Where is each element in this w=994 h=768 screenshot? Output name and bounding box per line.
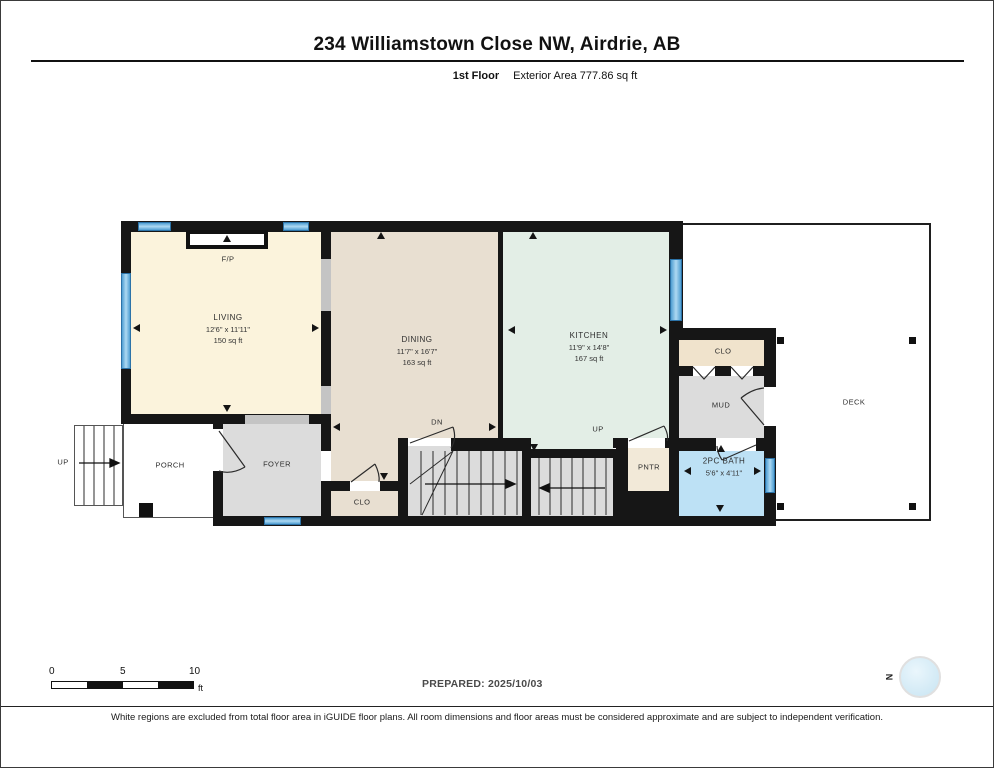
kitchen-floor-strip: [531, 438, 613, 449]
room-label-porch: PORCH: [155, 461, 184, 470]
hall-floor: [331, 424, 398, 481]
window: [264, 517, 301, 525]
scale-unit-label: ft: [198, 683, 203, 693]
wall: [616, 491, 679, 501]
exterior-area-label: Exterior Area 777.86 sq ft: [513, 70, 637, 82]
fireplace: [186, 230, 268, 249]
room-label-dining: DINING 11'7" x 16'7" 163 sq ft: [397, 334, 438, 369]
porch-post: [139, 503, 153, 517]
exterior-stairs-up-label: UP: [57, 458, 68, 467]
scale-tick-0: 0: [49, 666, 55, 677]
deck-post: [777, 503, 784, 510]
scale-bar: [51, 681, 194, 689]
exterior-stairs: [74, 425, 123, 506]
wall: [451, 438, 531, 451]
footer-divider: [1, 706, 994, 707]
wall: [321, 491, 331, 516]
wall-opening: [321, 259, 331, 311]
pantry-door-opening: [628, 438, 665, 448]
deck-post: [909, 337, 916, 344]
scale-segment: [123, 682, 158, 688]
porch-door-opening: [213, 429, 223, 471]
room-label-closet-hall: CLO: [354, 498, 371, 507]
deck-door-opening: [764, 387, 776, 426]
wall-opening: [245, 415, 309, 424]
window: [765, 458, 775, 493]
page-title: 234 Williamstown Close NW, Airdrie, AB: [1, 34, 993, 56]
scale-tick-10: 10: [189, 666, 200, 677]
window: [283, 222, 309, 231]
wall: [613, 449, 621, 516]
window: [121, 273, 131, 369]
deck-post: [777, 337, 784, 344]
prepared-date: PREPARED: 2025/10/03: [422, 678, 543, 690]
wall: [715, 366, 731, 376]
bath-door-opening: [716, 438, 756, 451]
porch-area: [123, 424, 213, 518]
room-label-living: LIVING 12'6" x 11'11" 150 sq ft: [206, 312, 250, 347]
compass-north-label: N: [883, 670, 895, 684]
title-divider: [31, 60, 964, 62]
window: [138, 222, 171, 231]
interior-stairs-up-label: UP: [592, 425, 603, 434]
wall: [531, 449, 621, 458]
foyer-floor: [223, 424, 321, 516]
wall: [398, 438, 408, 516]
interior-stairs-down-label: DN: [431, 418, 443, 427]
wall-opening: [321, 386, 331, 414]
wall: [764, 328, 776, 524]
room-label-kitchen: KITCHEN 11'9" x 14'8" 167 sq ft: [569, 330, 610, 365]
fireplace-label: F/P: [222, 255, 235, 264]
wall: [669, 328, 776, 340]
room-label-closet-wing: CLO: [715, 347, 732, 356]
wall: [522, 438, 531, 516]
wall: [498, 232, 503, 438]
floor-label: 1st Floor: [453, 70, 499, 82]
room-label-mud: MUD: [712, 401, 730, 410]
closet-door-opening: [350, 481, 380, 491]
room-label-pantry: PNTR: [638, 463, 660, 472]
stair-left-floor: [408, 446, 522, 516]
scale-segment: [87, 682, 122, 688]
scale-segment: [52, 682, 87, 688]
scale-tick-5: 5: [120, 666, 126, 677]
room-label-foyer: FOYER: [263, 460, 291, 469]
room-label-deck: DECK: [843, 398, 865, 407]
scale-segment: [158, 682, 193, 688]
floor-subtitle: 1st FloorExterior Area 777.86 sq ft: [49, 70, 994, 82]
disclaimer-text: White regions are excluded from total fl…: [1, 712, 993, 723]
room-label-bath: 2PC BATH 5'6" x 4'11": [703, 456, 746, 479]
wall: [679, 366, 693, 376]
wall: [753, 366, 764, 376]
window: [670, 259, 682, 321]
stair-right-floor: [531, 458, 613, 516]
deck-post: [909, 503, 916, 510]
wall: [321, 424, 331, 451]
compass-icon: [899, 656, 941, 698]
floor-plan-page: 234 Williamstown Close NW, Airdrie, AB 1…: [0, 0, 994, 768]
